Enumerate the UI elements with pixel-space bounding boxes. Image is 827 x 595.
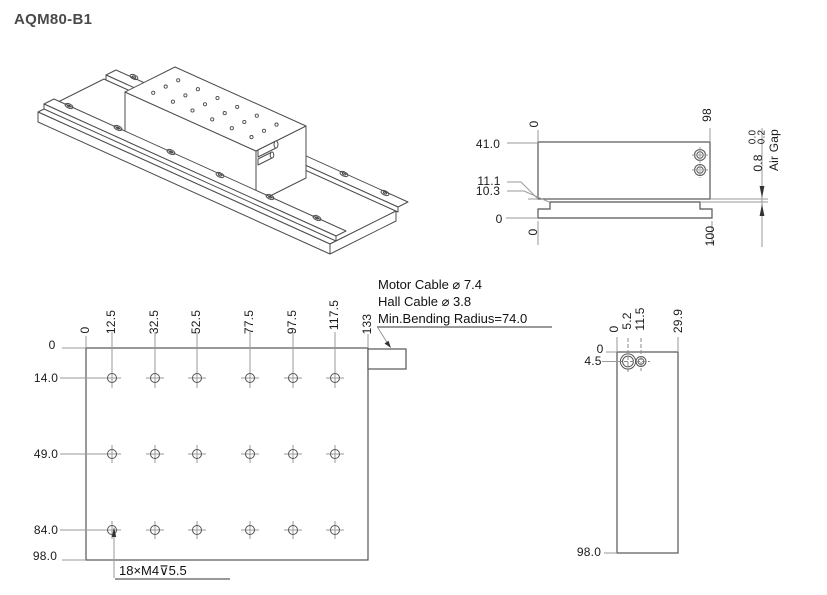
plan-col-dim-325: 32.5: [147, 310, 161, 334]
cable-note-line-hall: Hall Cable ⌀ 3.8: [378, 293, 527, 310]
side-left-dim-103: 10.3: [476, 184, 500, 198]
side-top-dim-0: 0: [527, 121, 541, 128]
plan-col-dim-1175: 117.5: [327, 300, 341, 330]
end-view: [602, 337, 678, 553]
plan-col-dim-133: 133: [360, 314, 374, 335]
side-left-dim-41: 41.0: [476, 137, 500, 151]
end-col-dim-0: 0: [607, 326, 621, 333]
end-col-dim-299: 29.9: [671, 309, 685, 333]
air-gap-arrow-up: [760, 204, 765, 216]
cable-note: Motor Cable ⌀ 7.4 Hall Cable ⌀ 3.8 Min.B…: [378, 276, 527, 327]
isometric-view: [38, 67, 408, 254]
plan-col-dim-0: 0: [78, 327, 92, 334]
plan-col-dim-525: 52.5: [189, 310, 203, 334]
air-gap-arrow-down: [760, 186, 765, 198]
air-gap-value: 0.8: [751, 154, 765, 171]
plan-row-dim-14: 14.0: [34, 371, 58, 385]
air-gap-tol-lower: 0.2: [757, 130, 768, 145]
cable-note-line-motor: Motor Cable ⌀ 7.4: [378, 276, 527, 293]
cable-note-arrow: [385, 341, 392, 348]
plan-row-dim-0: 0: [49, 338, 56, 352]
end-row-dim-45: 4.5: [584, 354, 601, 368]
side-bottom-dim-0: 0: [526, 229, 540, 236]
side-left-dim-0: 0: [496, 212, 503, 226]
plan-row-dim-49: 49.0: [34, 447, 58, 461]
end-col-dim-52: 5.2: [620, 312, 634, 329]
side-bottom-dim-100: 100: [703, 226, 717, 247]
air-gap-label: Air Gap: [767, 129, 781, 171]
end-col-dim-115: 11.5: [633, 307, 647, 330]
side-elevation-view: [506, 128, 768, 247]
plan-col-dim-775: 77.5: [242, 310, 256, 334]
plan-col-dim-975: 97.5: [285, 310, 299, 334]
plan-row-dim-84: 84.0: [34, 523, 58, 537]
end-row-dim-98: 98.0: [577, 545, 601, 559]
cable-connector-block: [368, 349, 406, 369]
mounting-holes: [108, 374, 340, 535]
plan-col-dim-125: 12.5: [104, 310, 118, 334]
cable-note-line-radius: Min.Bending Radius=74.0: [378, 310, 527, 327]
plan-row-dim-98: 98.0: [33, 549, 57, 563]
thread-note: 18×M4⊽5.5: [119, 562, 187, 579]
plan-view: [60, 327, 552, 579]
side-top-dim-98: 98: [700, 108, 714, 122]
drawing-canvas: AQM80-B1: [0, 0, 827, 595]
